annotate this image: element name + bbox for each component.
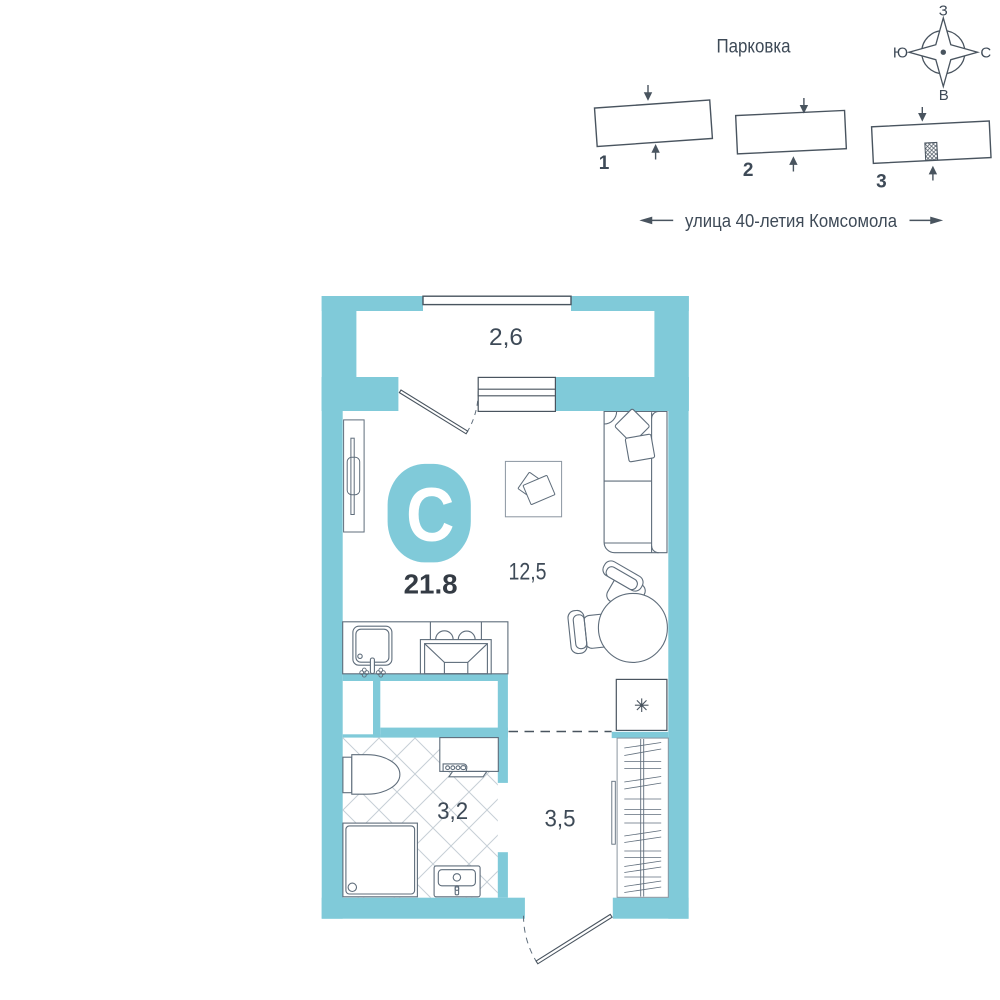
svg-text:21.8: 21.8 — [404, 568, 458, 599]
svg-text:В: В — [939, 87, 949, 104]
svg-text:2: 2 — [743, 160, 754, 181]
svg-text:3,5: 3,5 — [545, 806, 576, 833]
svg-text:3,2: 3,2 — [437, 798, 468, 825]
svg-text:12,5: 12,5 — [509, 559, 547, 586]
svg-text:Ю: Ю — [893, 45, 908, 62]
svg-text:С: С — [980, 45, 991, 62]
svg-text:Парковка: Парковка — [717, 37, 791, 58]
svg-text:2,6: 2,6 — [489, 324, 523, 351]
svg-text:1: 1 — [599, 153, 610, 174]
svg-text:C: C — [406, 473, 454, 558]
svg-text:3: 3 — [876, 171, 887, 192]
svg-text:улица 40-летия Комсомола: улица 40-летия Комсомола — [685, 210, 898, 231]
svg-text:З: З — [939, 2, 948, 19]
